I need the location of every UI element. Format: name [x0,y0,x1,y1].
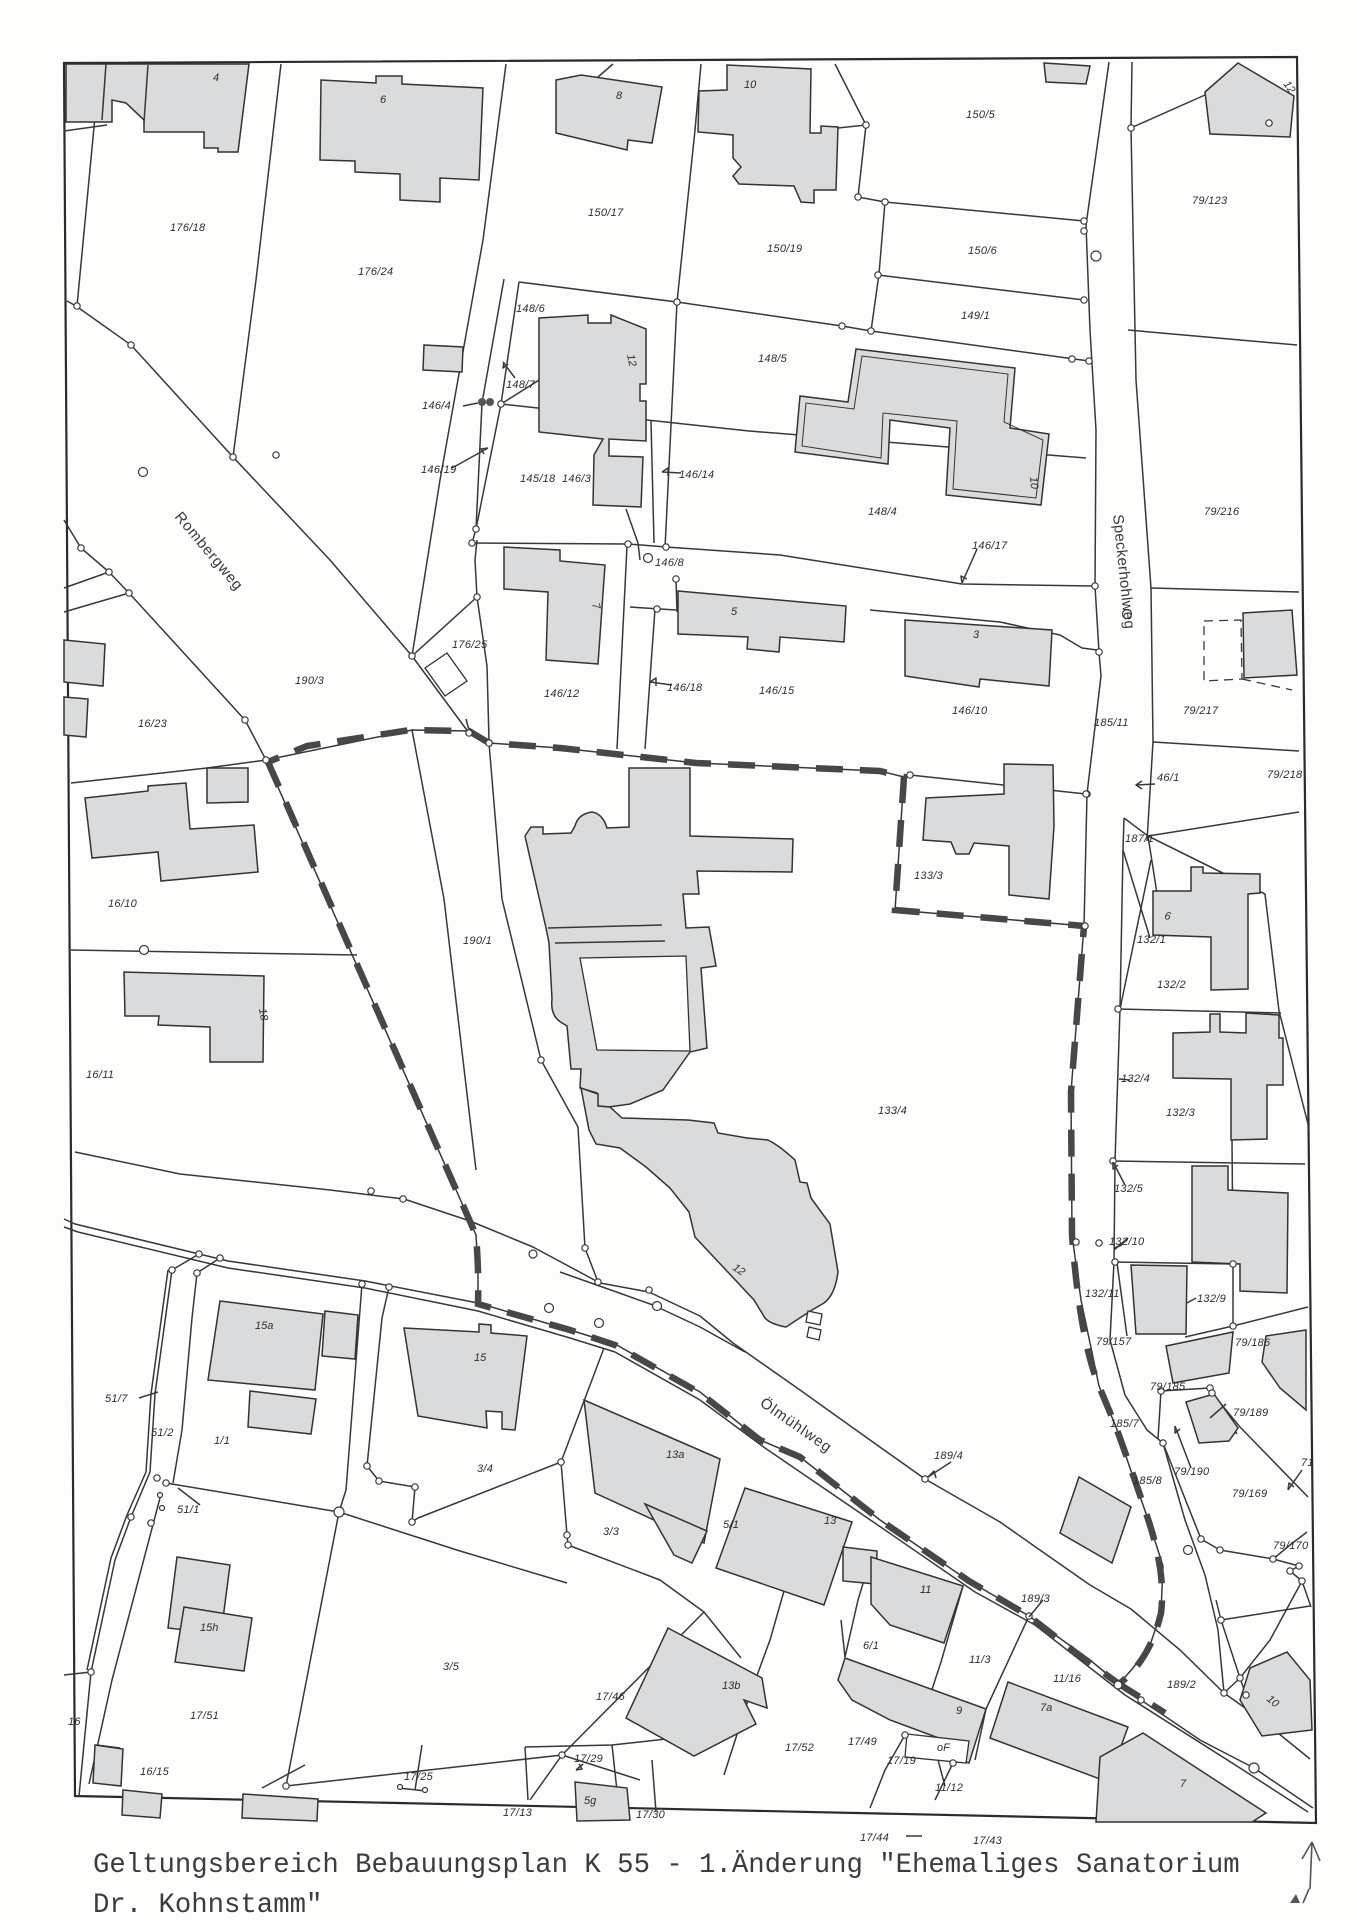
svg-text:17/30: 17/30 [636,1809,666,1821]
svg-text:5: 5 [731,606,738,618]
svg-text:132/5: 132/5 [1114,1183,1144,1195]
svg-text:176/18: 176/18 [170,222,206,234]
svg-text:190/1: 190/1 [463,935,492,947]
svg-text:146/17: 146/17 [972,540,1008,552]
svg-text:13b: 13b [722,1680,740,1692]
svg-text:79/169: 79/169 [1232,1488,1267,1500]
svg-text:132/9: 132/9 [1197,1293,1226,1305]
svg-text:17/13: 17/13 [503,1807,533,1819]
svg-text:10: 10 [744,79,757,91]
svg-text:10: 10 [1027,476,1040,490]
svg-text:132/3: 132/3 [1166,1107,1196,1119]
svg-text:190/3: 190/3 [295,675,325,687]
svg-text:71: 71 [1301,1457,1314,1469]
svg-text:79/123: 79/123 [1192,195,1228,207]
svg-text:13a: 13a [666,1449,684,1461]
svg-text:16/23: 16/23 [138,718,168,730]
svg-text:17/19: 17/19 [887,1755,916,1767]
svg-text:148/6: 148/6 [516,303,546,315]
svg-text:79/170: 79/170 [1273,1540,1309,1552]
svg-text:6: 6 [380,94,387,106]
svg-text:46/1: 46/1 [1157,772,1180,784]
svg-text:11: 11 [920,1584,931,1596]
svg-text:15: 15 [474,1352,487,1364]
svg-text:12: 12 [624,353,638,367]
svg-text:79/190: 79/190 [1174,1466,1210,1478]
svg-text:145/18: 145/18 [520,473,556,485]
svg-text:15a: 15a [255,1320,273,1332]
svg-text:17/51: 17/51 [190,1710,219,1722]
svg-text:150/6: 150/6 [968,245,998,257]
svg-text:11/3: 11/3 [969,1654,991,1666]
svg-text:133/4: 133/4 [878,1105,907,1117]
svg-text:146/15: 146/15 [759,685,795,697]
svg-text:79/218: 79/218 [1267,769,1303,781]
svg-text:3: 3 [973,629,980,641]
svg-text:16/11: 16/11 [86,1069,114,1081]
svg-text:17/29: 17/29 [574,1753,603,1765]
svg-text:17/49: 17/49 [848,1736,877,1748]
svg-text:133/3: 133/3 [914,870,944,882]
svg-text:132/10: 132/10 [1109,1236,1145,1248]
svg-text:185/7: 185/7 [1110,1418,1140,1430]
svg-text:146/12: 146/12 [544,688,579,700]
svg-text:189/3: 189/3 [1021,1593,1051,1605]
svg-text:146/14: 146/14 [679,469,714,481]
svg-text:176/24: 176/24 [358,266,393,278]
svg-text:15h: 15h [200,1622,218,1634]
svg-text:185/8: 185/8 [1133,1475,1163,1487]
svg-text:79/157: 79/157 [1096,1336,1132,1348]
svg-text:79/189: 79/189 [1233,1407,1268,1419]
svg-text:1/1: 1/1 [214,1435,230,1447]
svg-text:17/44: 17/44 [860,1832,889,1844]
svg-text:79/216: 79/216 [1204,506,1240,518]
svg-text:150/19: 150/19 [767,243,802,255]
svg-text:146/3: 146/3 [562,473,592,485]
svg-text:3/4: 3/4 [477,1463,493,1475]
svg-text:oF: oF [937,1742,951,1754]
svg-text:146/4: 146/4 [422,400,451,412]
svg-text:132/1: 132/1 [1137,934,1166,946]
svg-text:132/4: 132/4 [1121,1073,1150,1085]
svg-text:148/4: 148/4 [868,506,897,518]
svg-text:79/185: 79/185 [1150,1381,1186,1393]
svg-text:7: 7 [1180,1778,1187,1790]
svg-text:3/3: 3/3 [603,1526,620,1538]
svg-text:7a: 7a [1040,1702,1052,1714]
svg-text:146/18: 146/18 [667,682,703,694]
svg-text:51/1: 51/1 [177,1504,200,1516]
svg-text:11/16: 11/16 [1053,1673,1082,1685]
svg-text:189/2: 189/2 [1167,1679,1196,1691]
svg-text:189/4: 189/4 [934,1450,963,1462]
svg-text:146/10: 146/10 [952,705,988,717]
svg-text:8: 8 [616,90,623,102]
svg-text:51/7: 51/7 [105,1393,128,1405]
svg-text:79/186: 79/186 [1235,1337,1271,1349]
svg-text:5g: 5g [584,1795,597,1807]
svg-text:176/25: 176/25 [452,639,488,651]
svg-text:187/1: 187/1 [1125,833,1154,845]
svg-text:150/5: 150/5 [966,109,996,121]
svg-text:132/11: 132/11 [1085,1288,1120,1300]
svg-text:16/10: 16/10 [108,898,138,910]
svg-text:Geltungsbereich Bebauungsplan: Geltungsbereich Bebauungsplan K 55 - 1.Ä… [93,1850,1240,1881]
svg-text:16/15: 16/15 [140,1766,170,1778]
svg-text:13: 13 [824,1515,837,1527]
svg-text:11/12: 11/12 [935,1782,963,1794]
svg-text:3/5: 3/5 [443,1661,460,1673]
svg-text:6/1: 6/1 [863,1640,879,1652]
svg-text:17/46: 17/46 [596,1691,626,1703]
svg-text:17/25: 17/25 [404,1771,434,1783]
svg-text:16: 16 [68,1716,81,1728]
svg-text:149/1: 149/1 [961,310,990,322]
svg-text:79/217: 79/217 [1183,705,1219,717]
svg-text:148/7: 148/7 [506,379,536,391]
svg-text:148/5: 148/5 [758,353,788,365]
svg-text:5/1: 5/1 [723,1519,739,1531]
svg-text:9: 9 [956,1705,962,1717]
svg-text:185/11: 185/11 [1094,717,1129,729]
svg-text:51/2: 51/2 [151,1427,174,1439]
svg-text:150/17: 150/17 [588,207,624,219]
svg-text:146/19: 146/19 [421,464,456,476]
svg-text:132/2: 132/2 [1157,979,1186,991]
svg-text:17/43: 17/43 [973,1835,1003,1847]
svg-text:Dr. Kohnstamm": Dr. Kohnstamm" [93,1890,322,1920]
svg-text:17/52: 17/52 [785,1742,814,1754]
svg-text:146/8: 146/8 [655,557,685,569]
svg-text:4: 4 [213,72,219,84]
